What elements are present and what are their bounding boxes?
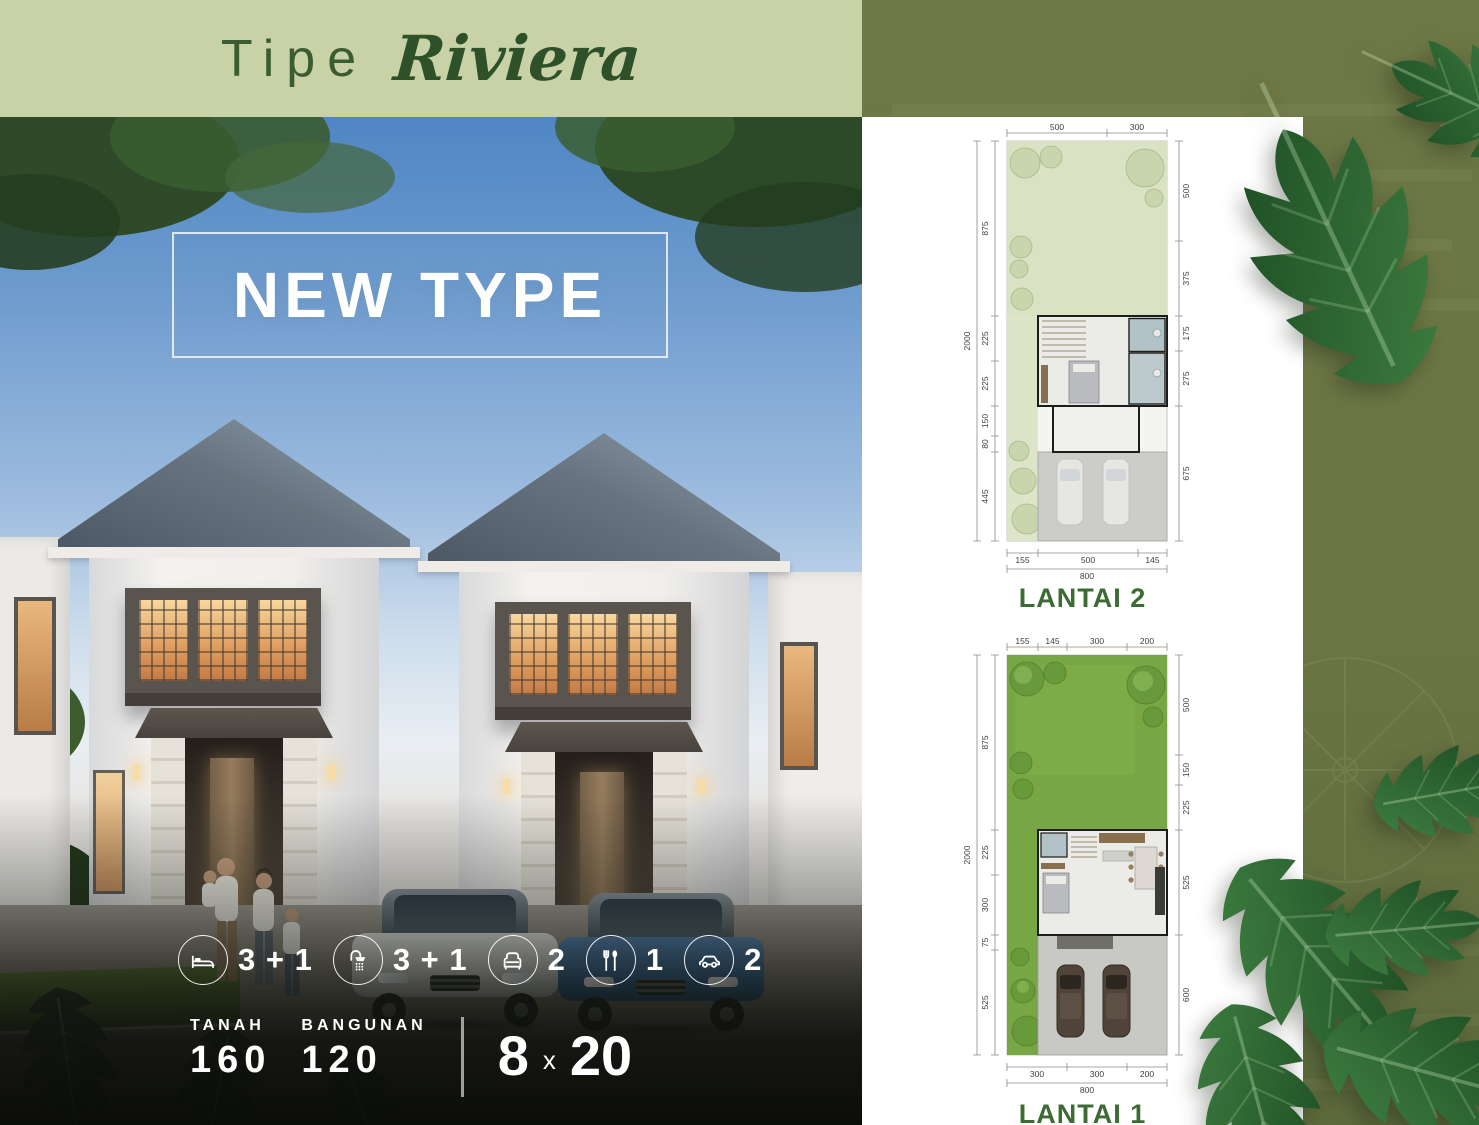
kitchen-island (1103, 851, 1133, 861)
amenity-value: 3 + 1 (393, 942, 468, 978)
flyer-canvas: Tipe Riviera (0, 0, 1479, 1125)
spec-building: BANGUNAN 120 (301, 1017, 426, 1082)
amenity-value: 2 (548, 942, 566, 978)
svg-text:875: 875 (980, 735, 990, 749)
svg-text:150: 150 (1181, 763, 1191, 777)
specs-row: TANAH 160 BANGUNAN 120 8 x 20 (190, 1017, 632, 1097)
svg-text:875: 875 (980, 221, 990, 235)
svg-text:445: 445 (980, 489, 990, 503)
svg-text:500: 500 (1081, 555, 1095, 565)
page-title-script: Riviera (392, 22, 644, 95)
svg-text:225: 225 (980, 376, 990, 390)
cornice (135, 708, 333, 738)
svg-text:525: 525 (1181, 875, 1191, 889)
spec-land-value: 160 (190, 1039, 271, 1082)
bay-window (125, 588, 321, 706)
svg-text:500: 500 (1181, 184, 1191, 198)
svg-text:375: 375 (1181, 271, 1191, 285)
svg-text:200: 200 (1140, 636, 1154, 646)
spec-land-label: TANAH (190, 1017, 271, 1035)
spec-size: 8 x 20 (498, 1023, 632, 1088)
specs-divider (461, 1017, 464, 1097)
svg-text:225: 225 (1181, 800, 1191, 814)
bedroom-bay (1053, 406, 1139, 452)
hero-photo: NEW TYPE 3 + 1 (0, 117, 862, 1125)
svg-text:145: 145 (1045, 636, 1059, 646)
bed-icon (178, 935, 228, 985)
svg-text:300: 300 (1090, 636, 1104, 646)
amenity-value: 3 + 1 (238, 942, 313, 978)
window (14, 597, 56, 735)
svg-text:300: 300 (1090, 1069, 1104, 1079)
amenity-bathrooms: 3 + 1 (333, 935, 468, 985)
spec-building-value: 120 (301, 1039, 426, 1082)
svg-text:675: 675 (1181, 466, 1191, 480)
floor-plan-lantai-1: 155 145 300 200 500 150 225 525 600 875 … (957, 635, 1207, 1095)
wall-sconce (698, 779, 705, 794)
svg-text:75: 75 (980, 938, 990, 948)
svg-text:300: 300 (1130, 122, 1144, 132)
shower-icon (333, 935, 383, 985)
page-title-prefix: Tipe (221, 29, 368, 89)
svg-text:155: 155 (1015, 555, 1029, 565)
svg-text:300: 300 (1030, 1069, 1044, 1079)
wall-sconce (133, 765, 140, 780)
svg-text:225: 225 (980, 331, 990, 345)
floor-plan-lantai-2: 500 300 500 375 175 275 675 875 225 225 … (957, 121, 1207, 581)
dining-table (1135, 847, 1157, 889)
svg-text:500: 500 (1050, 122, 1064, 132)
svg-text:145: 145 (1145, 555, 1159, 565)
header-band: Tipe Riviera (0, 0, 862, 117)
fridge-column (1155, 867, 1165, 915)
svg-text:225: 225 (980, 845, 990, 859)
bathroom (1129, 353, 1165, 404)
svg-text:200: 200 (1140, 1069, 1154, 1079)
roof (58, 419, 410, 547)
floor-plan-panel: 500 300 500 375 175 275 675 875 225 225 … (862, 117, 1303, 1125)
amenities-row: 3 + 1 3 + 1 (178, 935, 762, 985)
size-width: 8 (498, 1023, 529, 1088)
window (780, 642, 818, 770)
amenity-carport: 2 (684, 935, 762, 985)
wall-sconce (503, 779, 510, 794)
sofa-icon (488, 935, 538, 985)
svg-text:300: 300 (980, 898, 990, 912)
bay-window (495, 602, 691, 720)
svg-text:2000: 2000 (962, 331, 972, 350)
svg-text:80: 80 (980, 439, 990, 449)
amenity-value: 1 (646, 942, 664, 978)
svg-text:175: 175 (1181, 326, 1191, 340)
kitchen-counter (1099, 833, 1145, 843)
cutlery-icon (586, 935, 636, 985)
eaves (418, 561, 790, 572)
bathroom (1041, 833, 1067, 857)
svg-text:500: 500 (1181, 698, 1191, 712)
size-times: x (543, 1045, 556, 1076)
spec-land: TANAH 160 (190, 1017, 271, 1082)
plan-label-lantai-2: LANTAI 2 (862, 583, 1303, 614)
cornice (505, 722, 703, 752)
amenity-livingroom: 2 (488, 935, 566, 985)
wall-sconce (328, 765, 335, 780)
eaves (48, 547, 420, 558)
amenity-value: 2 (744, 942, 762, 978)
roof (428, 433, 780, 561)
wardrobe (1041, 863, 1065, 869)
svg-text:155: 155 (1015, 636, 1029, 646)
svg-text:800: 800 (1080, 1085, 1094, 1095)
svg-text:800: 800 (1080, 571, 1094, 581)
amenity-bedrooms: 3 + 1 (178, 935, 313, 985)
svg-text:2000: 2000 (962, 845, 972, 864)
svg-text:600: 600 (1181, 988, 1191, 1002)
car-icon (684, 935, 734, 985)
amenity-dining: 1 (586, 935, 664, 985)
svg-text:525: 525 (980, 995, 990, 1009)
spec-building-label: BANGUNAN (301, 1017, 426, 1035)
wardrobe (1041, 365, 1048, 403)
plan-label-lantai-1: LANTAI 1 (862, 1099, 1303, 1125)
new-type-badge: NEW TYPE (172, 232, 668, 358)
entry-tiles (1057, 935, 1113, 949)
size-length: 20 (570, 1023, 632, 1088)
svg-text:150: 150 (980, 414, 990, 428)
svg-text:275: 275 (1181, 371, 1191, 385)
